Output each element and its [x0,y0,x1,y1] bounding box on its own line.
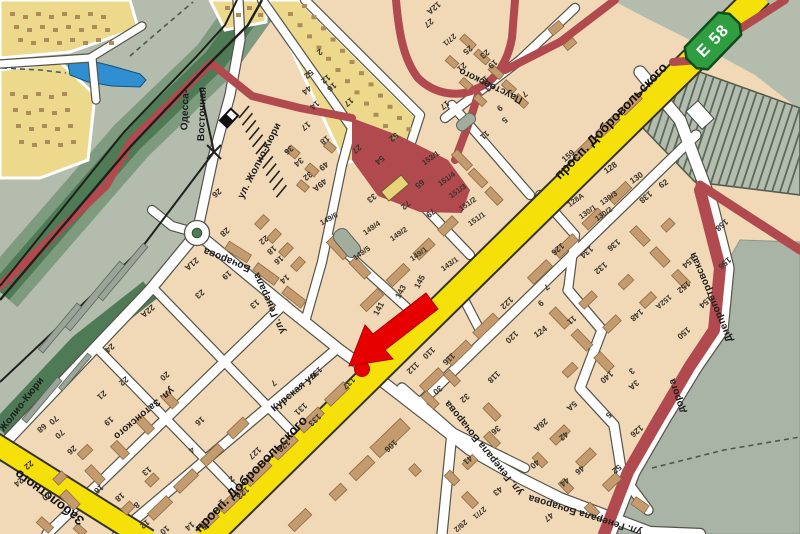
city-map[interactable]: Е 58 просп. Добровольскогопросп. Доброво… [0,0,800,534]
map-canvas[interactable]: Е 58 просп. Добровольскогопросп. Доброво… [0,0,800,534]
roundabout [185,221,210,246]
street-label: Одесса- [179,89,191,130]
street-label: Восточная [196,87,209,142]
